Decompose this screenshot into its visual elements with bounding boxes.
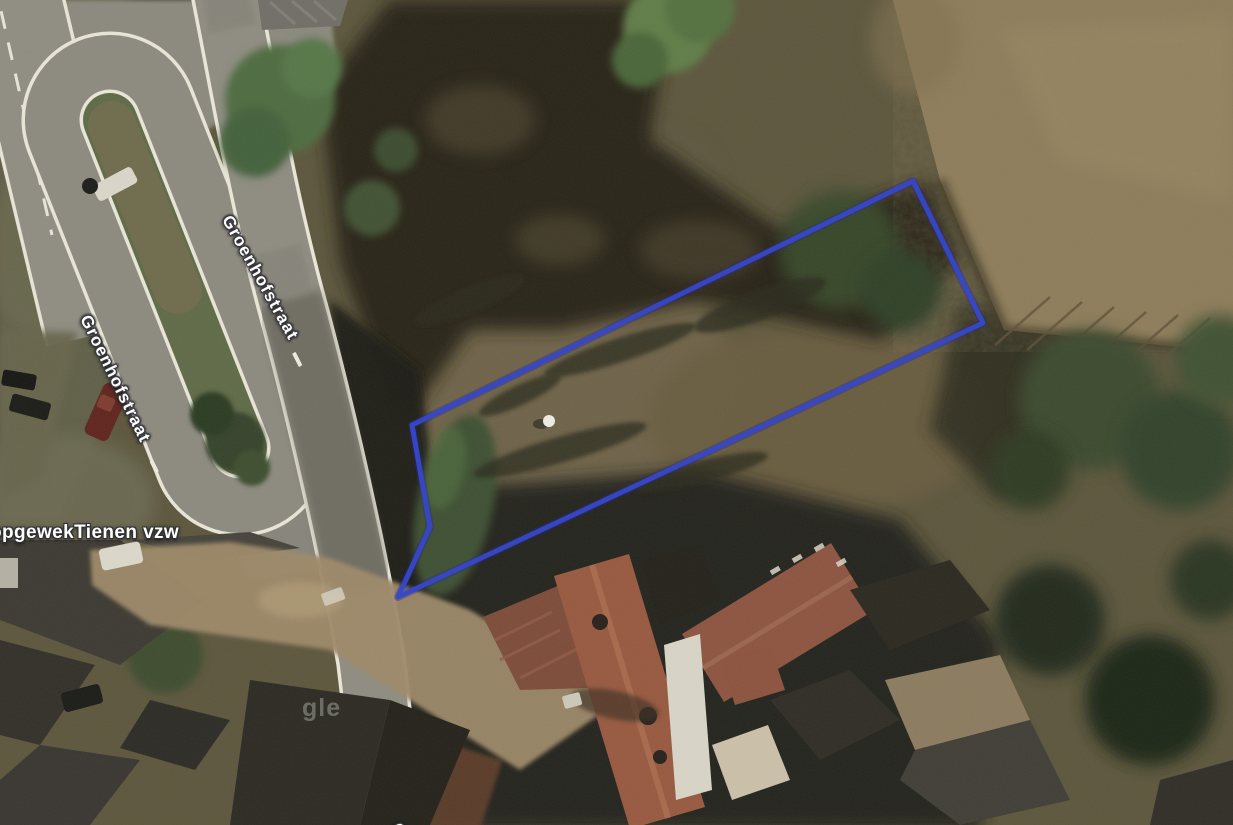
noise-overlay bbox=[0, 0, 1233, 825]
satellite-map-viewport[interactable]: Groenhofstraat Groenhofstraat G opgewekT… bbox=[0, 0, 1233, 825]
satellite-imagery bbox=[0, 0, 1233, 825]
poi-label-opgewektienen[interactable]: opgewekTienen vzw bbox=[0, 522, 179, 544]
